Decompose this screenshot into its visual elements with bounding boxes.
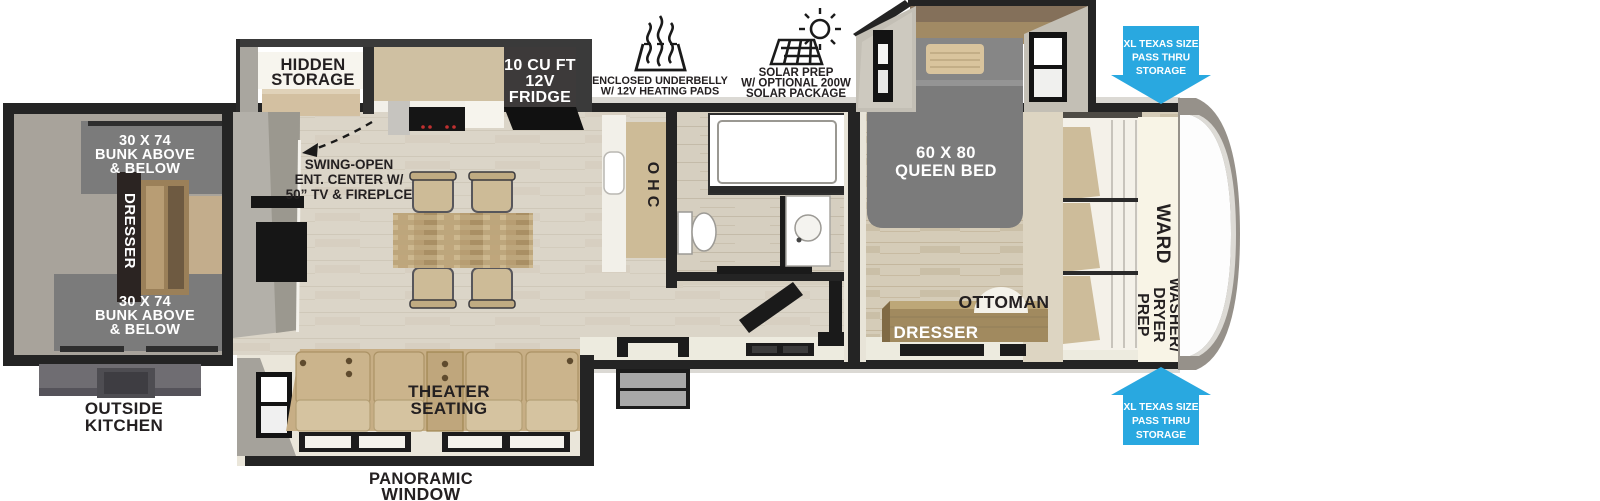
svg-text:WARD: WARD xyxy=(1152,204,1173,264)
svg-text:SEATING: SEATING xyxy=(410,399,487,418)
svg-text:XL TEXAS SIZE: XL TEXAS SIZE xyxy=(1123,39,1198,50)
svg-text:12V: 12V xyxy=(525,73,554,90)
svg-text:PASS THRU: PASS THRU xyxy=(1132,416,1190,427)
svg-text:50” TV & FIREPLCE: 50” TV & FIREPLCE xyxy=(286,187,413,202)
svg-text:XL TEXAS SIZE: XL TEXAS SIZE xyxy=(1123,402,1198,413)
svg-text:PASS THRU: PASS THRU xyxy=(1132,53,1190,64)
svg-text:PREP: PREP xyxy=(1134,293,1151,336)
svg-text:QUEEN BED: QUEEN BED xyxy=(895,162,997,180)
svg-text:OTTOMAN: OTTOMAN xyxy=(959,292,1050,312)
svg-text:60 X 80: 60 X 80 xyxy=(916,144,976,162)
svg-text:DRYER: DRYER xyxy=(1150,287,1167,342)
svg-text:W/ 12V HEATING PADS: W/ 12V HEATING PADS xyxy=(601,86,719,98)
svg-text:10 CU FT: 10 CU FT xyxy=(504,57,576,74)
svg-text:DRESSER: DRESSER xyxy=(121,193,138,269)
svg-text:WINDOW: WINDOW xyxy=(381,484,460,501)
svg-text:SWING-OPEN: SWING-OPEN xyxy=(305,157,394,172)
svg-text:KITCHEN: KITCHEN xyxy=(85,416,163,435)
svg-text:STORAGE: STORAGE xyxy=(1136,66,1186,77)
svg-text:STORAGE: STORAGE xyxy=(1136,430,1186,441)
svg-text:ENT. CENTER W/: ENT. CENTER W/ xyxy=(295,172,404,187)
svg-text:SOLAR PACKAGE: SOLAR PACKAGE xyxy=(746,88,846,100)
svg-text:& BELOW: & BELOW xyxy=(110,161,181,177)
svg-text:DRESSER: DRESSER xyxy=(894,323,979,342)
svg-text:& BELOW: & BELOW xyxy=(110,322,181,338)
svg-text:OHC: OHC xyxy=(644,162,661,213)
svg-text:STORAGE: STORAGE xyxy=(271,71,354,89)
svg-text:FRIDGE: FRIDGE xyxy=(509,89,571,106)
